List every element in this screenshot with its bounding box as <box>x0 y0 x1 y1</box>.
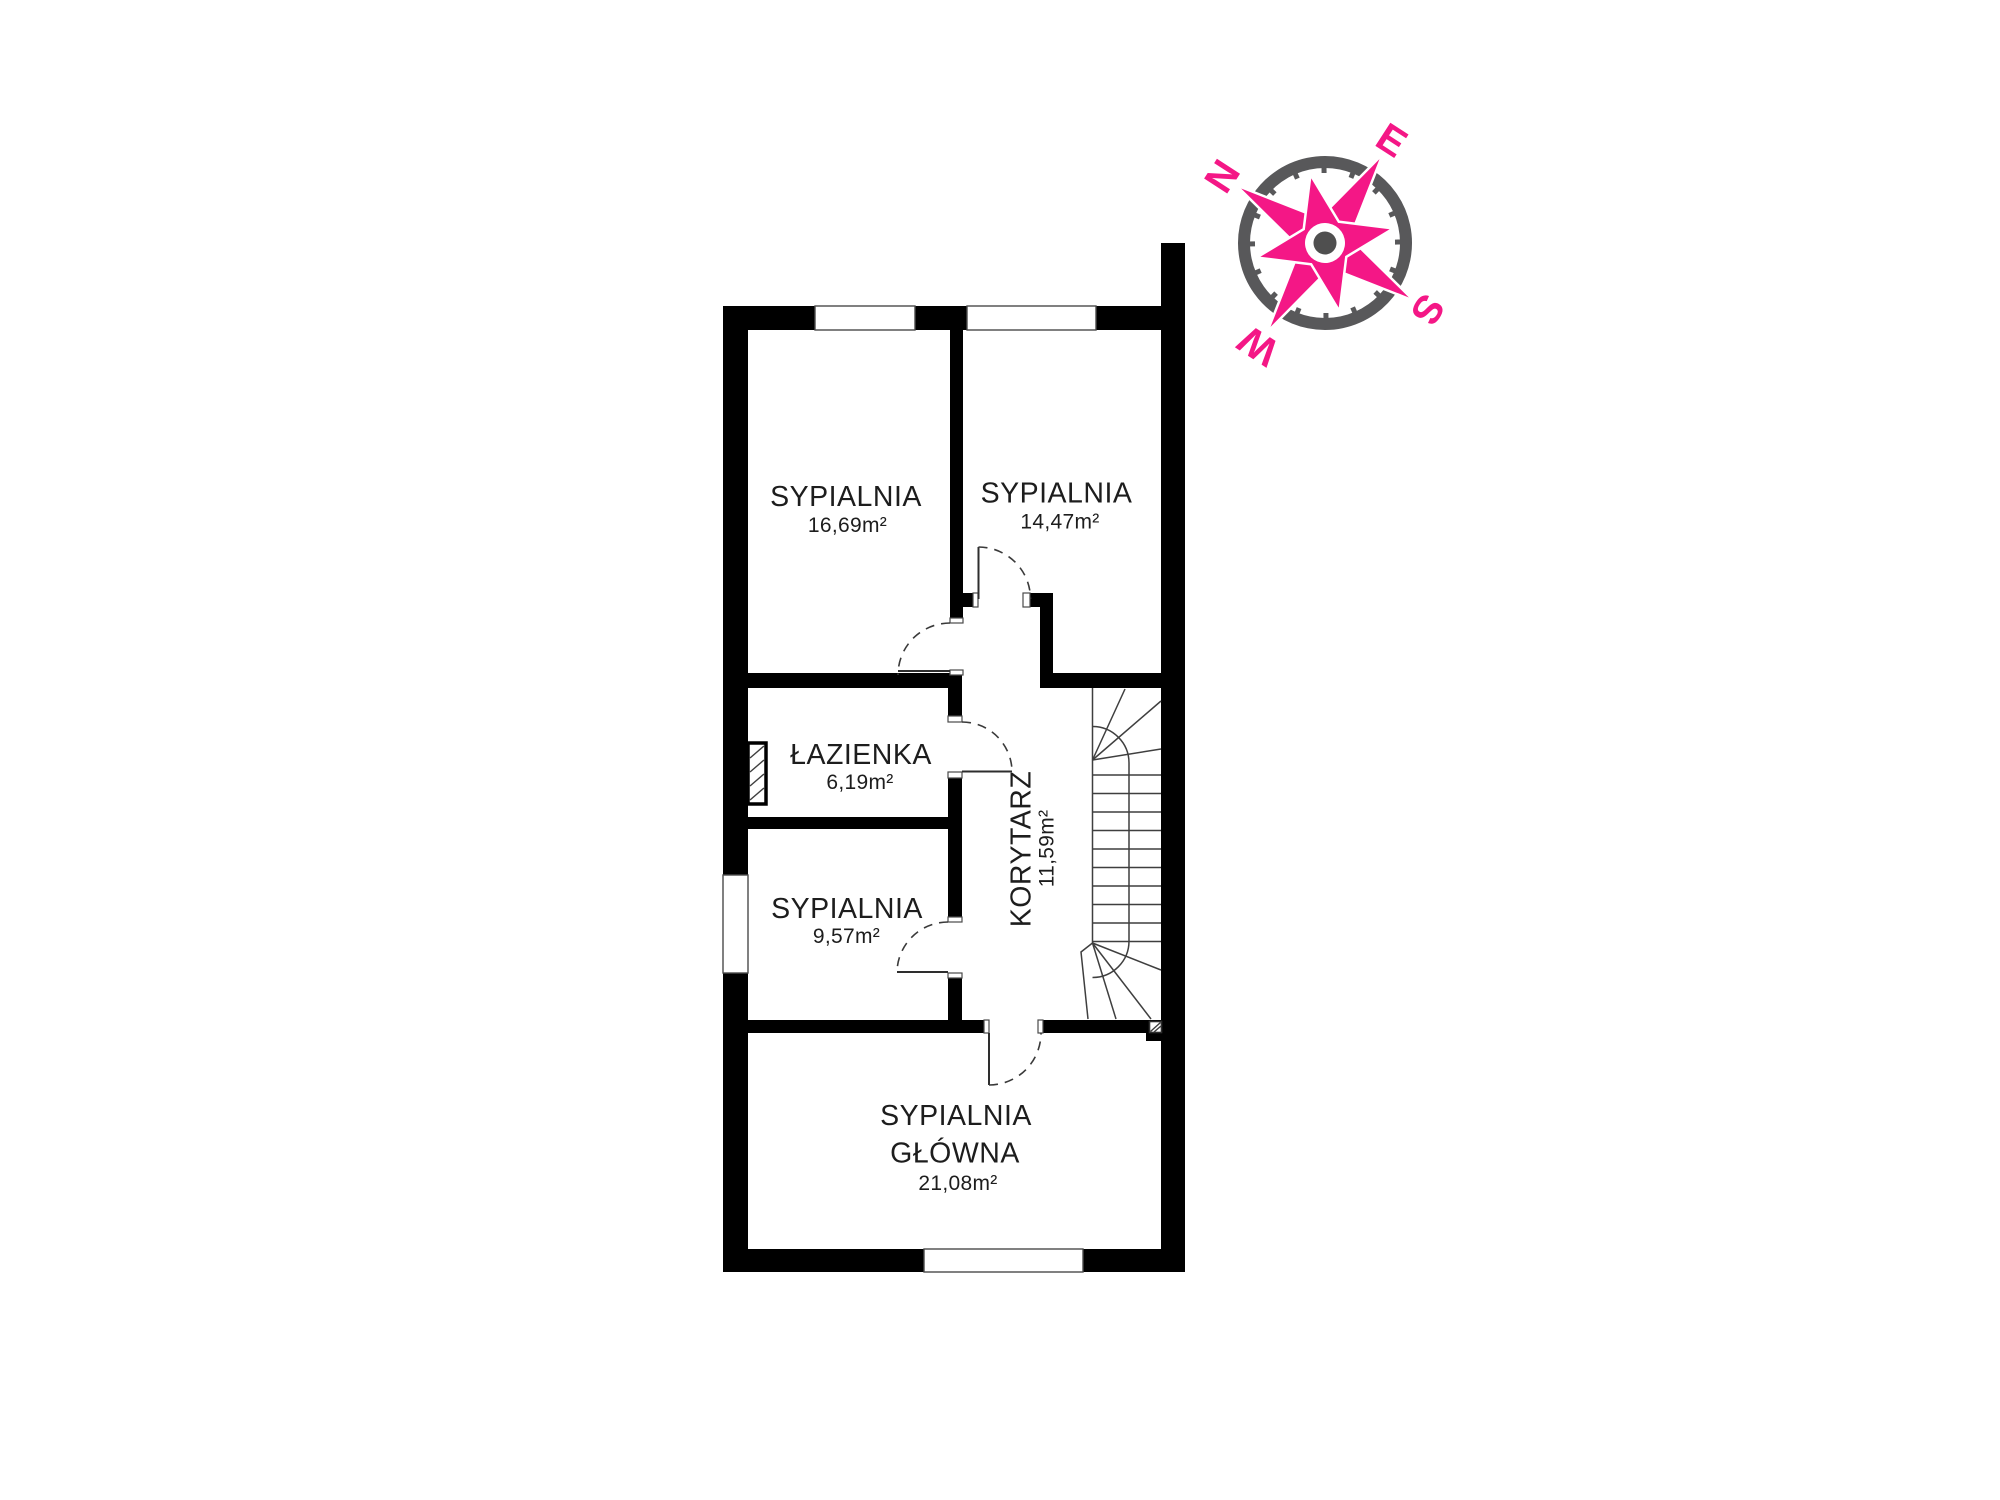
jamb <box>950 618 963 623</box>
jamb <box>984 1020 989 1033</box>
jamb <box>948 917 962 922</box>
room-area-bathroom: 6,19m² <box>826 771 893 794</box>
wall-1447-bottom <box>1040 673 1162 688</box>
room-label-bedroom2: SYPIALNIA <box>981 478 1133 510</box>
compass-letter-w: W <box>1231 316 1287 374</box>
room-label-master-line2: GŁÓWNA <box>890 1138 1020 1170</box>
jamb <box>1038 1020 1043 1033</box>
wall-bath-957 <box>748 817 958 829</box>
wall-bottom-a <box>723 1249 924 1272</box>
duct-square <box>1150 1022 1162 1033</box>
room-area-bedroom3: 9,57m² <box>813 925 880 948</box>
wall-top-b <box>915 306 967 330</box>
jamb <box>950 670 963 675</box>
room-area-master: 21,08m² <box>918 1172 997 1195</box>
compass-letter-e: E <box>1368 115 1414 166</box>
compass-letter-s: S <box>1402 286 1453 332</box>
wall-corridor-mid <box>948 778 962 917</box>
room-label-master-line1: SYPIALNIA <box>880 1100 1032 1132</box>
window-top-right <box>967 306 1096 330</box>
room-area-bedroom1: 16,69m² <box>808 514 887 537</box>
room-label-bedroom3: SYPIALNIA <box>771 893 923 925</box>
door-swing-bedroom1 <box>898 623 950 675</box>
jamb <box>948 716 962 722</box>
door-swing-master <box>989 1033 1041 1085</box>
partition-bedrooms-top <box>950 330 963 618</box>
window-top-left <box>815 306 915 330</box>
window-bottom <box>924 1249 1083 1272</box>
wall-1669-bottom <box>748 673 950 688</box>
wall-right <box>1161 243 1185 1272</box>
room-area-bedroom2: 14,47m² <box>1020 511 1099 534</box>
door-swing-bathroom <box>962 722 1012 772</box>
window-left <box>723 875 748 973</box>
stub-door-1447-left <box>963 593 973 607</box>
wall-bottom-b <box>1083 1249 1185 1272</box>
stair-treads <box>1093 775 1162 942</box>
wall-master-step <box>1146 1033 1162 1041</box>
interior-walls <box>748 330 1162 1041</box>
wall-bath-corridor-upper <box>948 673 962 716</box>
wall-master-left <box>748 1020 984 1033</box>
room-label-corridor: KORYTARZ <box>1006 771 1038 928</box>
door-swing-bedroom3 <box>897 922 948 973</box>
wall-left-upper <box>723 306 748 875</box>
room-area-corridor: 11,59m² <box>1036 810 1059 888</box>
jamb <box>948 772 962 778</box>
jamb <box>1023 593 1030 607</box>
room-label-bedroom1: SYPIALNIA <box>770 481 922 513</box>
compass-letter-n: N <box>1196 152 1249 200</box>
wall-top-c <box>1096 306 1162 330</box>
compass-rose-icon: N E S W <box>1126 44 1524 442</box>
wall-left-lower <box>723 973 748 1272</box>
stair-left-boundary <box>1081 688 1093 1019</box>
jamb <box>973 593 978 607</box>
floor-plan: SYPIALNIA 16,69m² SYPIALNIA 14,47m² ŁAZI… <box>0 0 2000 1500</box>
bathroom-radiator <box>748 743 766 804</box>
wall-top-a <box>723 306 815 330</box>
jamb <box>948 973 962 978</box>
door-swing-bedroom2 <box>979 547 1031 599</box>
room-label-bathroom: ŁAZIENKA <box>790 739 932 771</box>
wall-957-lower <box>948 978 962 1020</box>
wall-master-right <box>1043 1020 1162 1033</box>
staircase <box>1081 688 1161 1019</box>
